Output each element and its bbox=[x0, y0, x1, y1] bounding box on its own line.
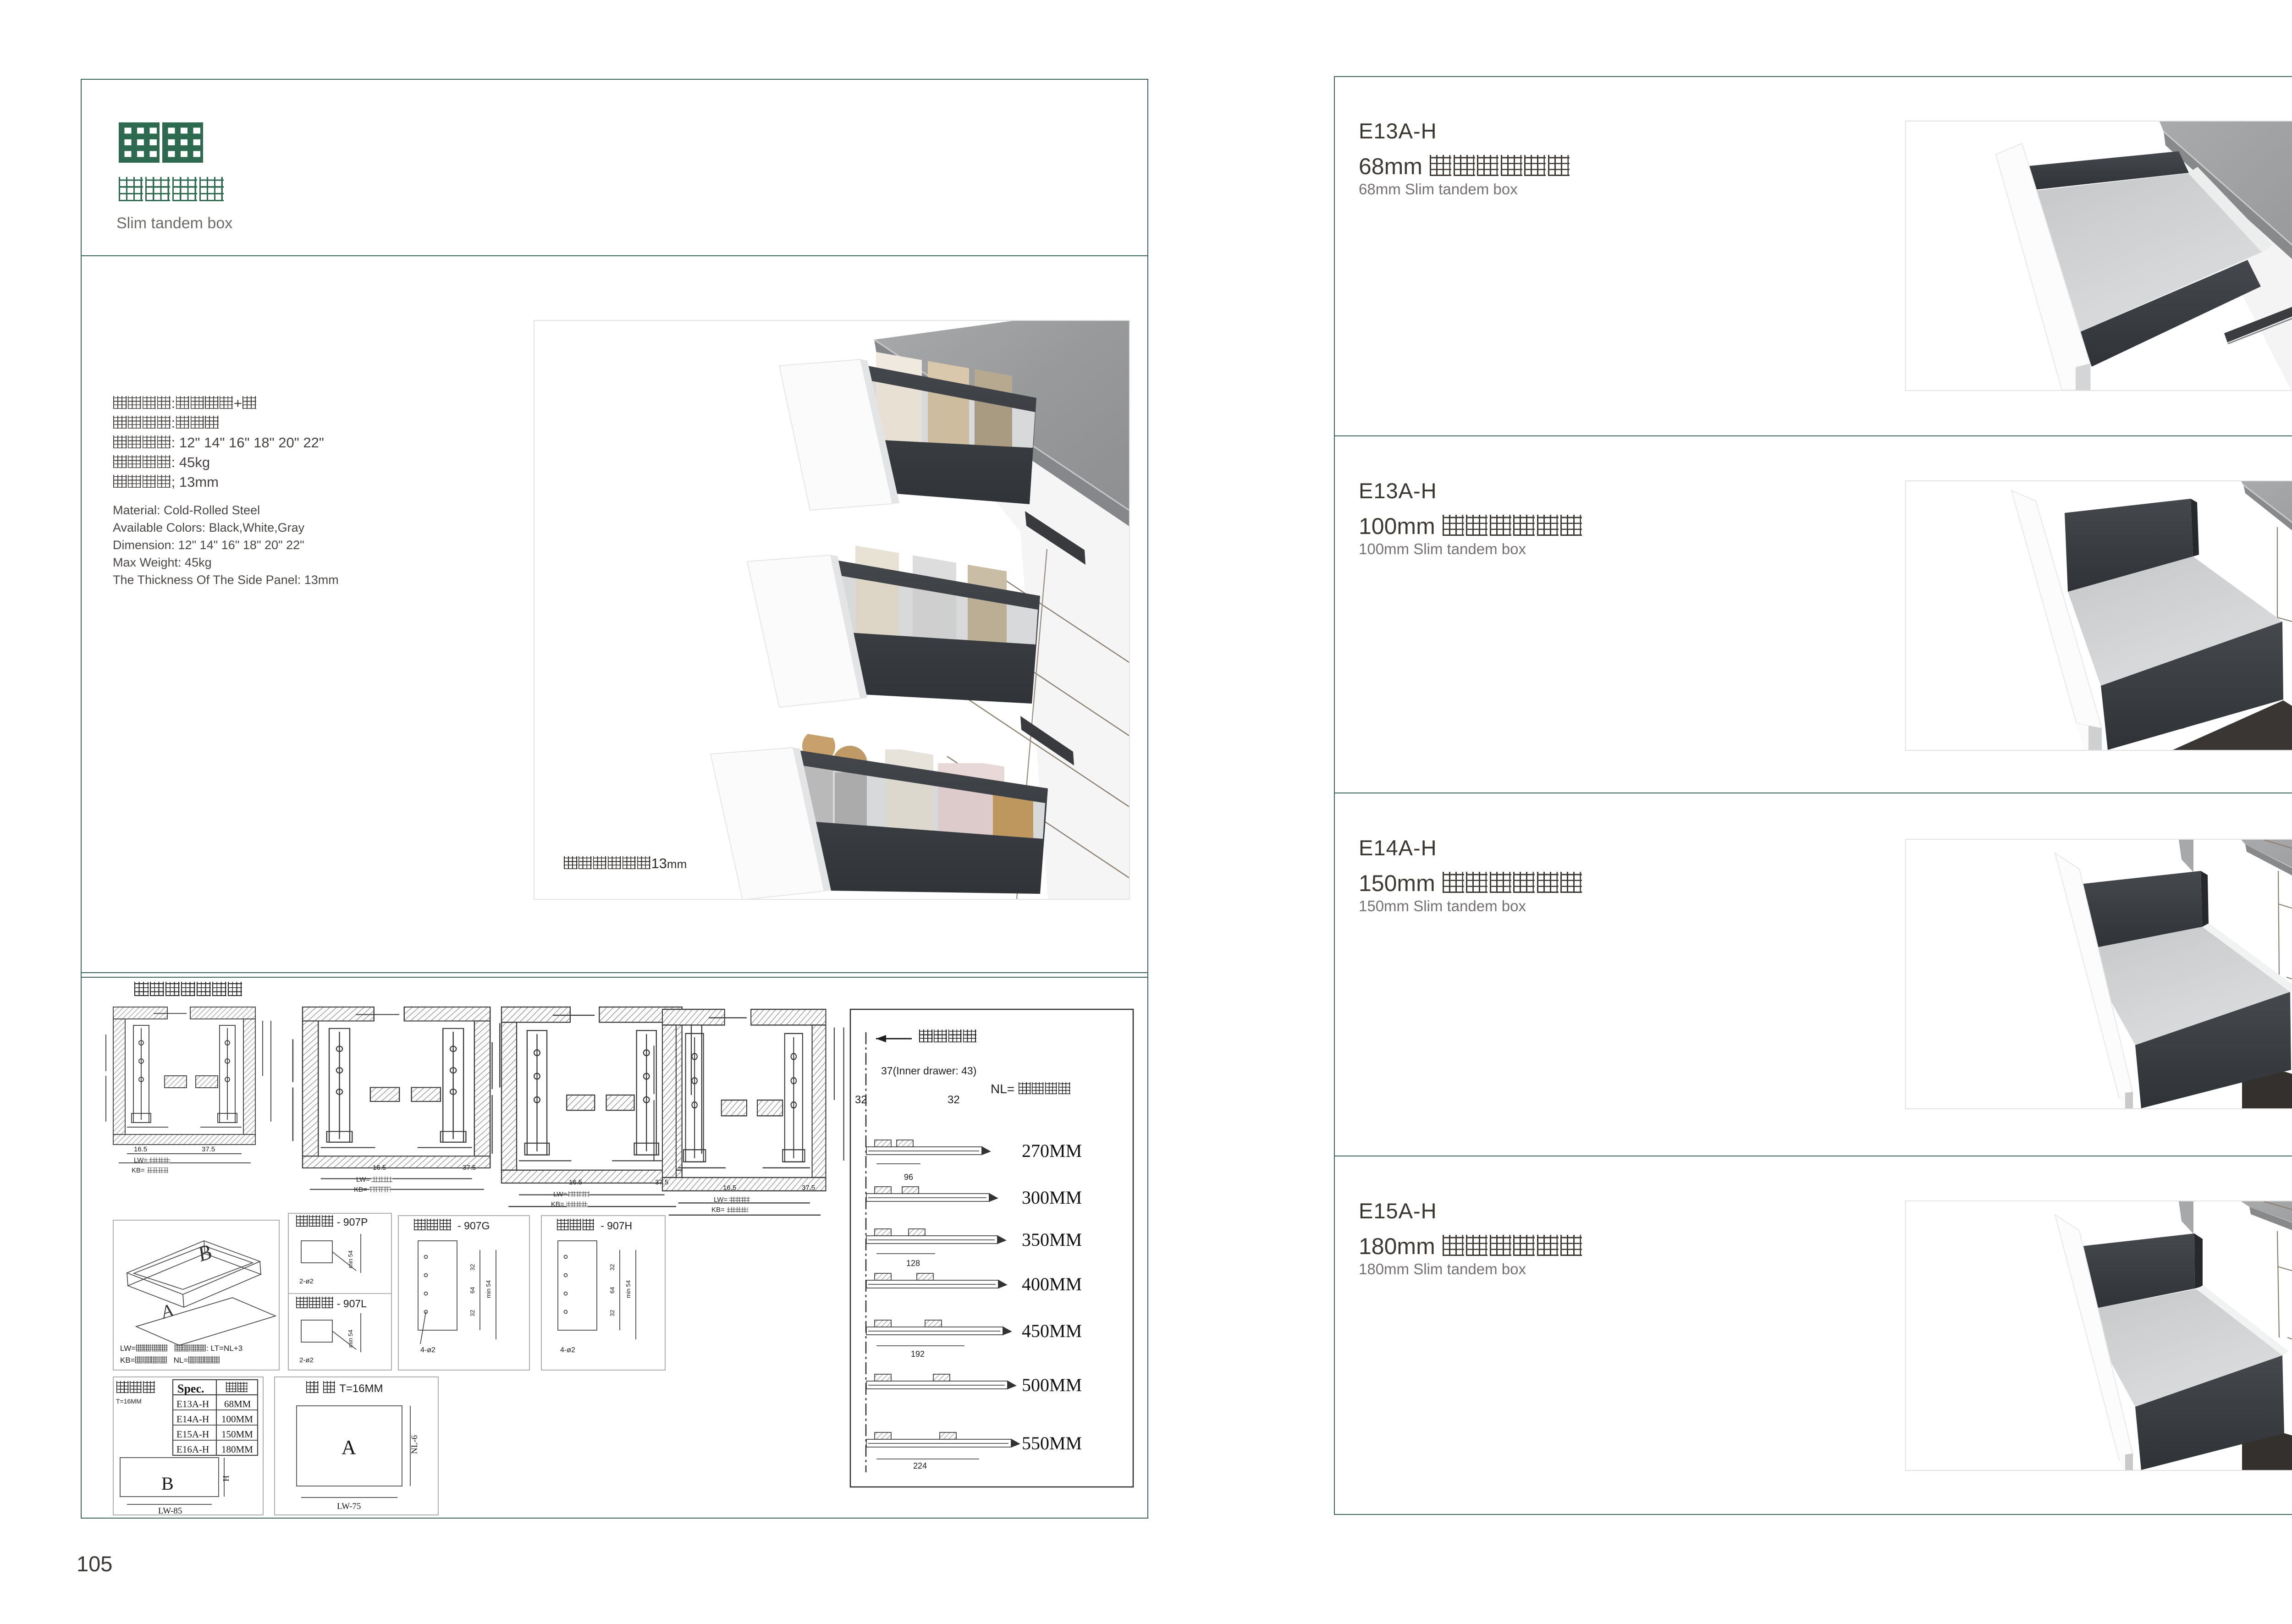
svg-text:E15A-H: E15A-H bbox=[176, 1429, 209, 1440]
svg-text:37.5: 37.5 bbox=[802, 1184, 815, 1192]
svg-text:400MM: 400MM bbox=[1022, 1274, 1082, 1294]
svg-text:32: 32 bbox=[609, 1310, 616, 1316]
svg-text:350MM: 350MM bbox=[1022, 1229, 1082, 1250]
svg-text:32: 32 bbox=[469, 1264, 476, 1271]
svg-text:LW=: LW= bbox=[356, 1176, 370, 1184]
svg-text:300MM: 300MM bbox=[1022, 1187, 1082, 1208]
svg-text:A: A bbox=[342, 1436, 356, 1459]
svg-text:LW-75: LW-75 bbox=[337, 1502, 361, 1511]
svg-text:64: 64 bbox=[469, 1287, 476, 1294]
svg-text:64: 64 bbox=[609, 1287, 616, 1294]
svg-text:550MM: 550MM bbox=[1022, 1433, 1082, 1453]
svg-text:68MM: 68MM bbox=[224, 1398, 251, 1409]
svg-text:NL-6: NL-6 bbox=[410, 1435, 419, 1454]
svg-text:192: 192 bbox=[911, 1349, 925, 1359]
svg-text:32: 32 bbox=[855, 1094, 867, 1106]
svg-text:KB=: KB= bbox=[132, 1167, 145, 1174]
svg-text:16.5: 16.5 bbox=[373, 1164, 386, 1172]
svg-text:E16A-H: E16A-H bbox=[176, 1444, 209, 1455]
svg-text:Spec.: Spec. bbox=[177, 1382, 204, 1395]
svg-text:37.5: 37.5 bbox=[463, 1164, 476, 1172]
svg-text:KB=: KB= bbox=[711, 1206, 725, 1214]
svg-text:32: 32 bbox=[469, 1310, 476, 1316]
svg-text:B: B bbox=[161, 1473, 174, 1494]
svg-text:2-ø2: 2-ø2 bbox=[299, 1277, 314, 1285]
svg-text:32: 32 bbox=[948, 1094, 960, 1106]
svg-text:E14A-H: E14A-H bbox=[176, 1414, 209, 1425]
svg-text:270MM: 270MM bbox=[1022, 1140, 1082, 1161]
svg-text:37.5: 37.5 bbox=[202, 1145, 215, 1153]
svg-text:224: 224 bbox=[913, 1461, 927, 1470]
svg-text:LW-85: LW-85 bbox=[158, 1506, 182, 1516]
svg-text:min 54: min 54 bbox=[347, 1250, 354, 1268]
svg-text:KB=: KB= bbox=[354, 1186, 367, 1194]
svg-text:KB=: KB= bbox=[551, 1200, 564, 1208]
svg-text:min 54: min 54 bbox=[625, 1280, 632, 1298]
svg-text:16.5: 16.5 bbox=[569, 1178, 582, 1186]
svg-text:180MM: 180MM bbox=[221, 1444, 253, 1455]
svg-text:4-ø2: 4-ø2 bbox=[420, 1346, 435, 1354]
svg-text:150MM: 150MM bbox=[221, 1429, 253, 1440]
svg-text:LW=: LW= bbox=[134, 1156, 148, 1164]
svg-text:500MM: 500MM bbox=[1022, 1375, 1082, 1395]
svg-text:100MM: 100MM bbox=[221, 1414, 253, 1425]
svg-text:LW=: LW= bbox=[714, 1196, 727, 1204]
svg-text:96: 96 bbox=[904, 1173, 913, 1182]
svg-text:32: 32 bbox=[609, 1264, 616, 1271]
svg-text:T=16MM: T=16MM bbox=[116, 1398, 142, 1405]
svg-text:min 54: min 54 bbox=[347, 1330, 354, 1348]
svg-text:128: 128 bbox=[906, 1259, 920, 1268]
svg-text:4-ø2: 4-ø2 bbox=[560, 1346, 575, 1354]
svg-text:LW=: LW= bbox=[553, 1190, 567, 1198]
svg-text:16.5: 16.5 bbox=[723, 1184, 736, 1192]
svg-text:2-ø2: 2-ø2 bbox=[299, 1356, 314, 1364]
svg-text:37(Inner drawer: 43): 37(Inner drawer: 43) bbox=[881, 1065, 976, 1077]
svg-text:37.5: 37.5 bbox=[655, 1178, 668, 1186]
svg-text:16.5: 16.5 bbox=[134, 1145, 147, 1153]
svg-text:min 54: min 54 bbox=[485, 1280, 492, 1298]
svg-text:450MM: 450MM bbox=[1022, 1321, 1082, 1341]
svg-text:E13A-H: E13A-H bbox=[176, 1398, 209, 1409]
svg-text:H: H bbox=[221, 1475, 231, 1481]
